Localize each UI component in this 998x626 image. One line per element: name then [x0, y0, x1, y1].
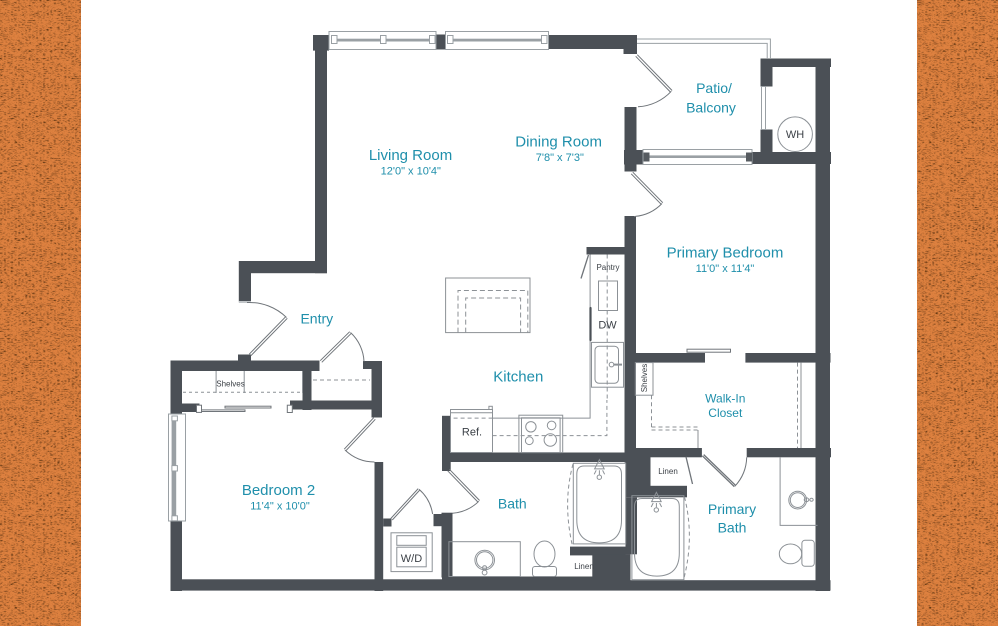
svg-text:Primary: Primary — [708, 501, 756, 517]
svg-text:W/D: W/D — [401, 553, 422, 565]
svg-text:11'4" x 10'0": 11'4" x 10'0" — [250, 501, 310, 513]
svg-text:Dining Room: Dining Room — [515, 134, 602, 151]
svg-text:7'8" x 7'3": 7'8" x 7'3" — [536, 152, 584, 164]
svg-text:Linen: Linen — [574, 562, 594, 571]
svg-text:Shelves: Shelves — [640, 364, 649, 392]
svg-text:Kitchen: Kitchen — [493, 368, 543, 385]
svg-text:Balcony: Balcony — [686, 99, 736, 115]
svg-text:WH: WH — [786, 129, 804, 141]
svg-text:Patio/: Patio/ — [696, 80, 732, 96]
svg-text:Bath: Bath — [498, 495, 527, 511]
svg-text:11'0" x 11'4": 11'0" x 11'4" — [696, 263, 755, 275]
svg-text:Entry: Entry — [300, 311, 333, 327]
svg-text:Primary Bedroom: Primary Bedroom — [667, 245, 784, 262]
svg-text:DW: DW — [598, 320, 617, 332]
svg-text:Linen: Linen — [658, 467, 678, 476]
svg-text:Walk-In: Walk-In — [705, 391, 745, 405]
svg-text:Bedroom 2: Bedroom 2 — [242, 482, 315, 499]
svg-text:Pantry: Pantry — [596, 263, 619, 272]
svg-text:12'0" x 10'4": 12'0" x 10'4" — [381, 166, 441, 178]
svg-text:Bath: Bath — [718, 519, 747, 535]
svg-text:Shelves: Shelves — [216, 380, 244, 389]
svg-text:Living Room: Living Room — [369, 147, 452, 164]
svg-text:Closet: Closet — [708, 406, 743, 420]
svg-text:Ref.: Ref. — [462, 427, 482, 439]
